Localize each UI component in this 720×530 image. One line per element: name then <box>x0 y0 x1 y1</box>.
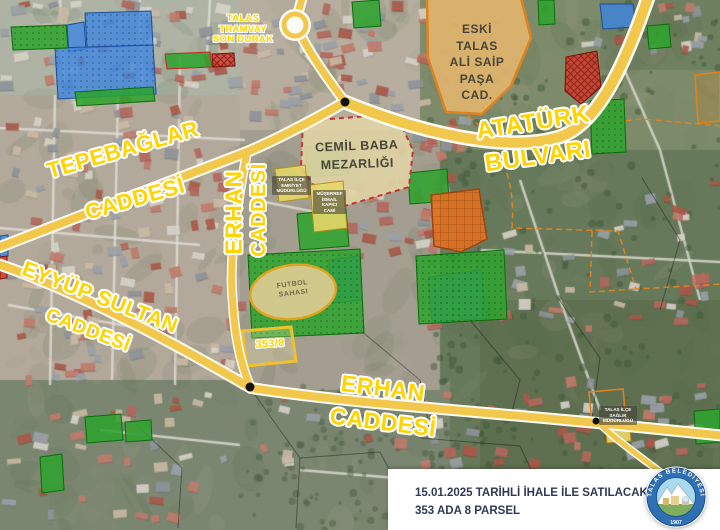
municipal-parcel-map: TALAS TRAMVAY SON DURAK ESKİ TALAS ALİ S… <box>0 0 720 530</box>
map-overlay <box>0 0 720 530</box>
label-cemil-baba-cemetery: CEMİL BABA MEZARLIĞI <box>286 136 427 176</box>
road-label-erhan-vertical-2: CADDESİ <box>249 142 269 278</box>
label-eski-talas: ESKİ TALAS ALİ SAİP PAŞA CAD. <box>429 21 525 104</box>
road-label-erhan-vertical: ERHAN <box>223 158 246 268</box>
talas-municipality-logo: TALAS BELEDİYESİ 1907 <box>645 466 707 528</box>
label-mosque: MÜŞERREF İSMAİL KAPICI CAMİ <box>313 190 346 214</box>
logo-year: 1907 <box>670 520 682 526</box>
label-health-directorate: TALAS İLÇE SAĞLIK MÜDÜRLÜĞÜ <box>599 406 637 425</box>
label-tram-stop: TALAS TRAMVAY SON DURAK <box>200 14 286 46</box>
label-police-department: TALAS İLÇE EMNİYET MÜDÜRLÜĞÜ <box>272 176 311 195</box>
